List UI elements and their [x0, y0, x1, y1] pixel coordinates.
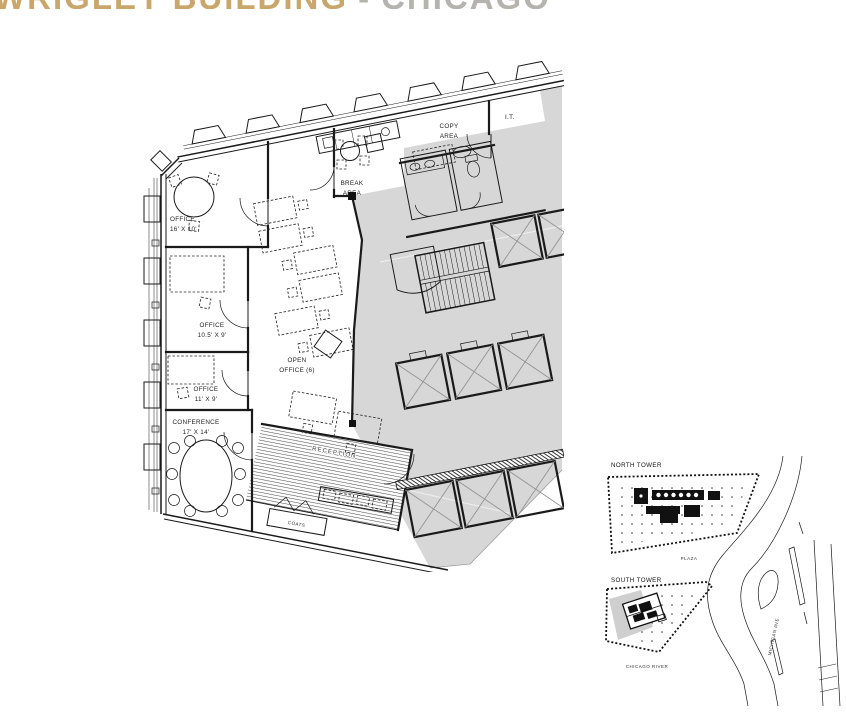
traffic-island	[758, 570, 778, 609]
conference-room: CONFERENCE 17' X 14'	[167, 419, 246, 517]
open-office-label-2: OFFICE (6)	[279, 367, 315, 374]
exterior-left-wall	[144, 174, 166, 514]
office-11x9: OFFICE 11' X 9'	[168, 356, 218, 403]
conference-label-1: CONFERENCE	[172, 419, 219, 426]
desk	[168, 356, 214, 384]
main-floor-plan: RECEPTION COATS OFFICE 16' X 1	[144, 58, 637, 575]
office-c-door-arc	[222, 370, 248, 396]
office-a-label-2: 16' X 10'	[170, 226, 197, 233]
office-b-label-2: 10.5' X 9'	[198, 332, 227, 339]
conference-label-2: 17' X 14'	[183, 429, 210, 436]
sink-icon	[381, 127, 390, 136]
north-tower-parcel: NORTH TOWER PLAZA	[608, 462, 759, 561]
office-b-label-1: OFFICE	[200, 322, 225, 329]
window-mullions	[152, 240, 159, 494]
conference-chairs	[167, 436, 246, 517]
break-area-label-1: BREAK	[341, 180, 364, 187]
copy-area-label-2: AREA	[440, 133, 459, 140]
break-door-arc	[310, 166, 334, 190]
conference-door-arc	[224, 432, 252, 460]
office-c-label-1: OFFICE	[194, 386, 219, 393]
office-16x10: OFFICE 16' X 10'	[169, 173, 220, 233]
it-room-label: I.T.	[505, 114, 515, 121]
michigan-ave-label: MICHIGAN AVE	[767, 617, 780, 655]
coats-label: COATS	[287, 520, 305, 528]
office-a-door-arc	[240, 198, 268, 226]
office-c-label-2: 11' X 9'	[195, 396, 218, 403]
side-table	[314, 330, 342, 358]
north-tower-label: NORTH TOWER	[611, 462, 662, 469]
office-10-5x9: OFFICE 10.5' X 9'	[170, 256, 226, 339]
conference-table	[180, 440, 232, 512]
south-tower-label: SOUTH TOWER	[611, 577, 662, 584]
median-island	[789, 547, 805, 605]
floor-plan-svg: RECEPTION COATS OFFICE 16' X 1	[0, 0, 846, 720]
desk	[170, 256, 224, 292]
plaza-label: PLAZA	[681, 556, 698, 561]
open-office-label-1: OPEN	[287, 357, 306, 364]
break-area: BREAK AREA	[310, 129, 383, 197]
break-counter	[316, 121, 400, 154]
chicago-river-label: CHICAGO RIVER	[626, 664, 669, 669]
site-plan-inset: NORTH TOWER PLAZA SOUTH TOWER	[606, 456, 840, 706]
office-a-label-1: OFFICE	[170, 216, 195, 223]
copy-area-label-1: COPY	[439, 123, 459, 130]
south-tower-parcel: SOUTH TOWER CHICAGO RIVER	[606, 577, 712, 669]
